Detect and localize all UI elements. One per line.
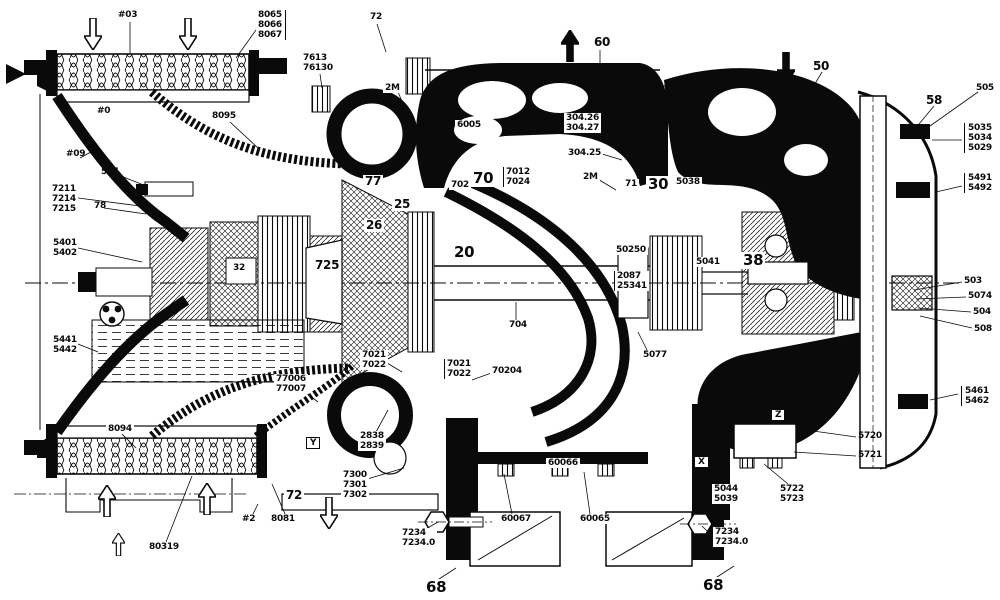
bearing-assembly-right [742, 212, 854, 334]
engineering-drawing-page: #038065 8066 8067727613 761302M600560304… [0, 0, 1000, 600]
cross-section-drawing [0, 0, 1000, 600]
